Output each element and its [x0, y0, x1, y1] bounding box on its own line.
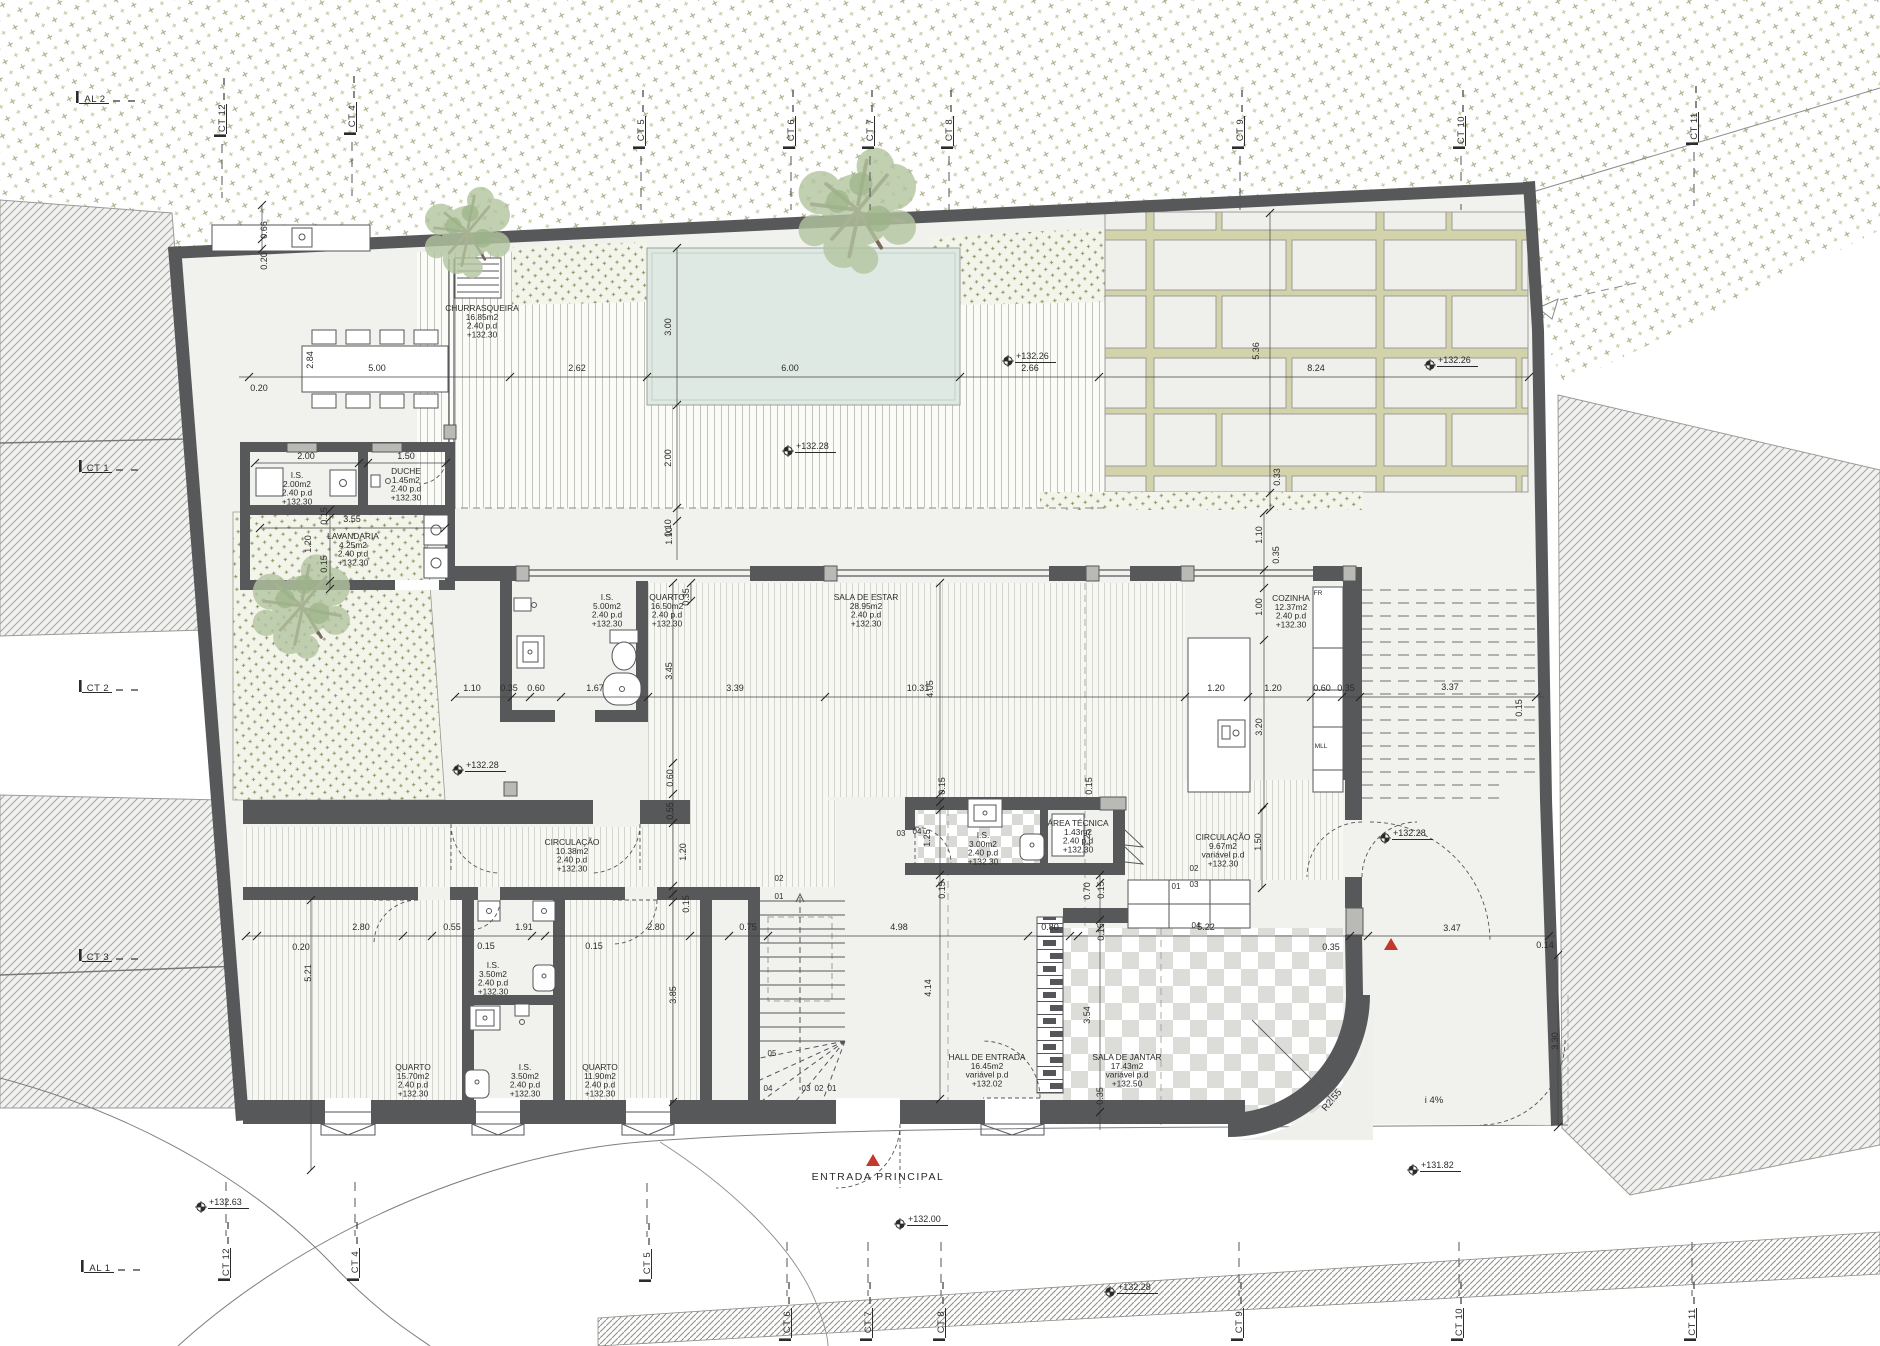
- level-text: +131.82: [1421, 1160, 1454, 1170]
- dimension-text: 1.20: [1207, 683, 1225, 693]
- room-label: +132.30: [338, 557, 369, 567]
- dimension-text: 0.66: [259, 221, 269, 239]
- dimension-text: 3.55: [343, 514, 361, 524]
- dimension-text: 0.70: [1082, 882, 1092, 900]
- grid-marker: CT 6: [779, 1242, 793, 1341]
- dimension-text: 0.35: [1322, 942, 1340, 952]
- stair-number: 04: [764, 1084, 773, 1093]
- dimension-text: 0.15: [1096, 881, 1106, 899]
- room-label: +132.30: [1276, 619, 1307, 629]
- floor-sala-estar: [828, 583, 1185, 797]
- pool: [647, 248, 960, 405]
- annotation-text: ENTRADA PRINCIPAL: [812, 1171, 945, 1183]
- stair-number: 05: [768, 1049, 777, 1058]
- level-text: +132.28: [1393, 828, 1426, 838]
- dimension-text: 2.84: [305, 351, 315, 369]
- room-label: +132.50: [1112, 1078, 1143, 1088]
- dimension-text: 0.15: [319, 555, 329, 573]
- room-label: +132.30: [391, 492, 422, 502]
- dimension-text: 1.20: [303, 535, 313, 553]
- grid-marker: CT 2: [79, 680, 142, 694]
- room-label: +132.30: [282, 496, 313, 506]
- level-marker: +131.82: [1407, 1160, 1461, 1176]
- dimension-text: 2.80: [647, 922, 665, 932]
- level-marker: +132.00: [894, 1214, 948, 1230]
- appliance-label: FR: [1314, 590, 1323, 597]
- level-text: +132.28: [466, 760, 499, 770]
- dimension-text: 2.62: [568, 363, 586, 373]
- dimension-text: 0.20: [292, 942, 310, 952]
- level-text: +132.63: [209, 1197, 242, 1207]
- dimension-text: 0.33: [1272, 468, 1282, 486]
- dimension-text: 0.15: [937, 881, 947, 899]
- room-label: +132.30: [585, 1088, 616, 1098]
- dimension-text: 5.36: [1251, 342, 1261, 360]
- dimension-text: 4.14: [923, 979, 933, 997]
- dimension-text: 3.39: [726, 683, 744, 693]
- gravel-strip: [1040, 492, 1363, 510]
- dimension-text: 3.37: [1441, 682, 1459, 692]
- appliance-label: MLL: [1315, 743, 1328, 750]
- dimension-text: 0.75: [739, 922, 757, 932]
- dimension-text: 0.14: [1536, 940, 1554, 950]
- room-label: +132.30: [968, 856, 999, 866]
- stair-number: 04: [913, 827, 922, 836]
- room-label: +132.30: [510, 1088, 541, 1098]
- dimension-text: 1.10: [664, 527, 674, 545]
- floor-plan-drawing: CHURRASQUEIRA16.85m22.40 p.d+132.30I.S.2…: [0, 0, 1880, 1346]
- stair-number: 02: [815, 1084, 824, 1093]
- dimension-text: 1.00: [1254, 598, 1264, 616]
- floor-sala-jantar: [1063, 928, 1343, 1113]
- level-marker: +132.63: [195, 1197, 249, 1213]
- level-text: +132.00: [908, 1214, 941, 1224]
- stair-number: 02: [1190, 864, 1199, 873]
- entrance-triangle-icon: [866, 1154, 880, 1166]
- dimension-text: 0.35: [1271, 546, 1281, 564]
- room-label: +132.30: [652, 618, 683, 628]
- dimension-text: 0.35: [1337, 683, 1355, 693]
- stair-number: 02: [775, 874, 784, 883]
- annotation-text: i 4%: [1425, 1095, 1444, 1106]
- dimension-text: 0.15: [319, 507, 329, 525]
- dimension-text: 3.47: [1443, 923, 1461, 933]
- room-label: +132.30: [557, 863, 588, 873]
- room-label: +132.30: [1208, 858, 1239, 868]
- room-label: +132.30: [592, 618, 623, 628]
- neighbor-area-right: [1558, 395, 1880, 1195]
- neighbor-building-left-bottom: [0, 795, 237, 1108]
- dimension-text: 1.10: [463, 683, 481, 693]
- dimension-text: 0.15: [681, 895, 691, 913]
- dimension-text: 0.80: [1041, 922, 1059, 932]
- grid-marker: CT 8: [933, 1242, 947, 1341]
- dimension-text: 0.35: [500, 683, 518, 693]
- stair-number: 03: [1190, 880, 1199, 889]
- dimension-text: 1.10: [1254, 526, 1264, 544]
- dimension-text: 1.50: [1253, 833, 1263, 851]
- floor-plan-canvas: CHURRASQUEIRA16.85m22.40 p.d+132.30I.S.2…: [0, 0, 1880, 1346]
- stair-number: 01: [828, 1084, 837, 1093]
- dimension-text: 3.85: [668, 986, 678, 1004]
- dimension-text: 2.66: [1021, 363, 1039, 373]
- dimension-text: 1.20: [1264, 683, 1282, 693]
- dimension-text: 0.35: [1095, 1087, 1105, 1105]
- dimension-text: 0.15: [477, 941, 495, 951]
- dimension-text: 0.60: [527, 683, 545, 693]
- floor-corridor: [243, 827, 836, 887]
- dimension-text: 1.20: [678, 843, 688, 861]
- dimension-text: 3.30: [1550, 1032, 1560, 1050]
- dimension-text: 3.00: [663, 318, 673, 336]
- stair-number: 03: [897, 829, 906, 838]
- dimension-text: 5.21: [303, 964, 313, 982]
- dimension-text: 0.20: [250, 383, 268, 393]
- dimension-text: 0.60: [1313, 683, 1331, 693]
- dimension-text: 8.24: [1307, 363, 1325, 373]
- grid-marker: AL 1: [81, 1260, 144, 1274]
- dimension-text: 2.00: [297, 451, 315, 461]
- dimension-text: 6.00: [781, 363, 799, 373]
- room-label: +132.02: [972, 1078, 1003, 1088]
- dimension-text: 2.80: [352, 922, 370, 932]
- dimension-text: 0.55: [665, 802, 675, 820]
- dimension-text: 0.15: [585, 941, 603, 951]
- grid-marker: CT 5: [639, 1183, 653, 1282]
- dimension-text: 0.15: [1096, 923, 1106, 941]
- dimension-text: 0.20: [259, 252, 269, 270]
- dimension-text: 0.15: [1084, 777, 1094, 795]
- stone-terrace: [1105, 212, 1528, 492]
- dimension-text: 0.35: [681, 588, 691, 606]
- room-label: +132.30: [851, 618, 882, 628]
- dimension-text: 3.45: [664, 662, 674, 680]
- room-label: +132.30: [478, 986, 509, 996]
- dimension-text: 3.20: [1254, 718, 1264, 736]
- stair-number: 01: [775, 892, 784, 901]
- level-text: +132.28: [796, 441, 829, 451]
- dimension-text: 1.91: [515, 922, 533, 932]
- room-label: +132.30: [467, 329, 498, 339]
- level-text: +132.28: [1118, 1282, 1151, 1292]
- dimension-text: 4.05: [925, 680, 935, 698]
- grid-marker: CT 7: [860, 1242, 874, 1341]
- stair-number: 03: [802, 1084, 811, 1093]
- dimension-text: 0.15: [1514, 699, 1524, 717]
- dimension-text: 4.98: [890, 922, 908, 932]
- louver-strip: [1037, 917, 1063, 1093]
- dimension-text: 0.55: [443, 922, 461, 932]
- dimension-text: 1.25: [1082, 829, 1092, 847]
- dimension-text: 5.00: [368, 363, 386, 373]
- level-text: +132.26: [1016, 351, 1049, 361]
- dimension-text: 3.54: [1082, 1006, 1092, 1024]
- dimension-text: 1.25: [922, 829, 932, 847]
- dimension-text: 0.60: [665, 769, 675, 787]
- dimension-text: 1.50: [397, 451, 415, 461]
- dimension-text: 0.15: [937, 777, 947, 795]
- grid-marker: CT 4: [347, 1182, 361, 1281]
- room-label: +132.30: [398, 1088, 429, 1098]
- planting-bed-top-left: [512, 242, 647, 305]
- stair-number: 04: [1192, 921, 1201, 930]
- dimension-text: 1.67: [586, 683, 604, 693]
- level-text: +132.26: [1438, 355, 1471, 365]
- dimension-text: 2.00: [663, 449, 673, 467]
- stair-number: 01: [1172, 882, 1181, 891]
